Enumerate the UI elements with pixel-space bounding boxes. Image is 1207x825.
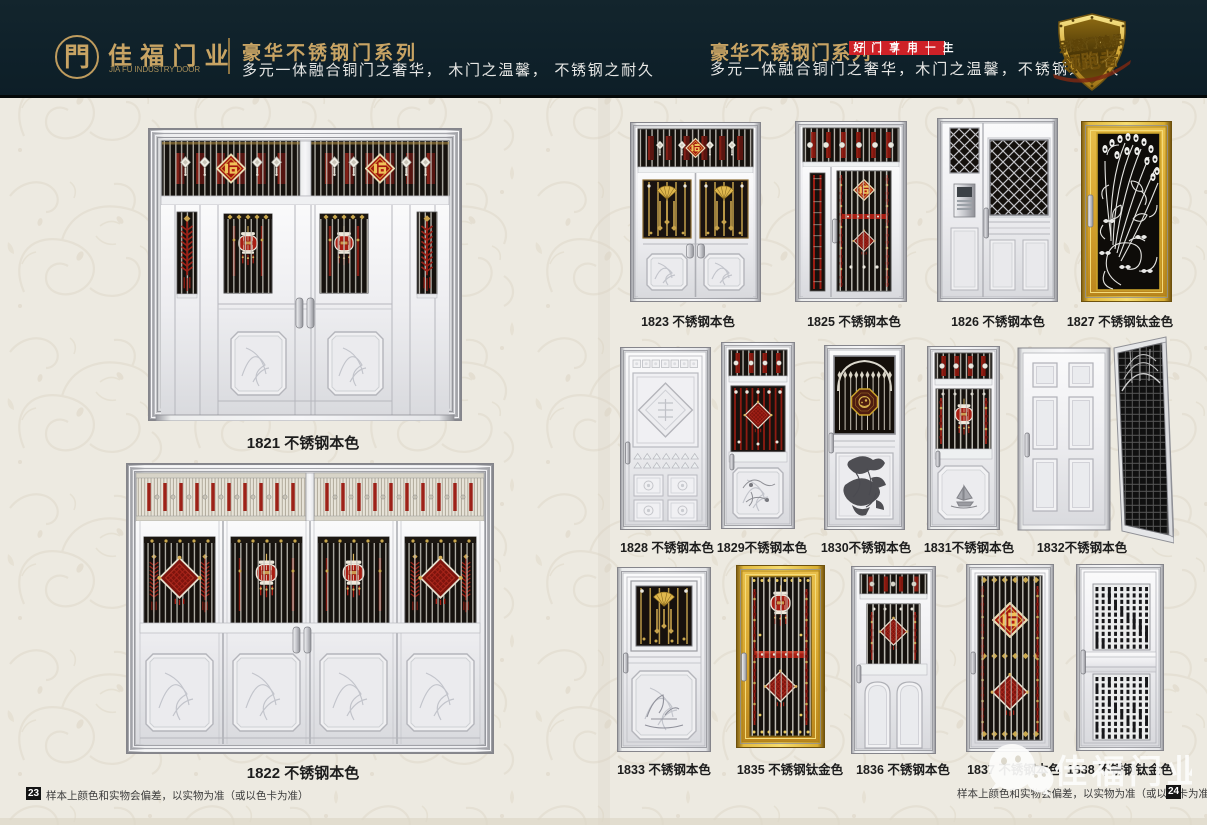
svg-text:佳福门业: 佳福门业 xyxy=(1054,753,1192,790)
